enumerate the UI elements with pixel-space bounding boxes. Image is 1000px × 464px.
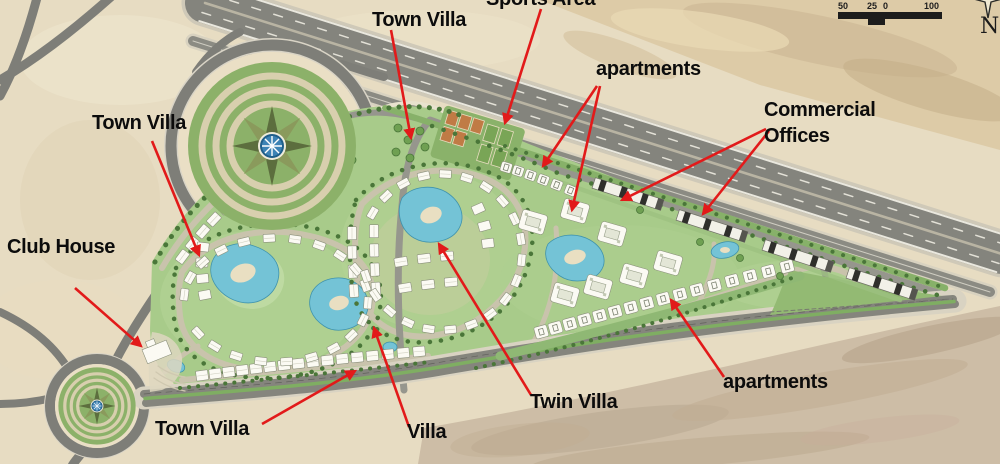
villa-building xyxy=(381,349,394,360)
label-commercial-offices: Commercial Offices xyxy=(764,97,876,149)
scale-tick-0: 0 xyxy=(883,1,888,11)
villa-building xyxy=(440,251,454,261)
label-twin-villa: Twin Villa xyxy=(530,389,617,415)
villa-building xyxy=(198,289,211,300)
villa-building xyxy=(516,232,526,245)
label-town-villa-top: Town Villa xyxy=(372,7,466,33)
scale-bar: 50250100 xyxy=(836,1,952,31)
north-label: N xyxy=(980,14,999,39)
villa-building xyxy=(288,235,301,245)
villa-building xyxy=(517,254,526,267)
villa-building xyxy=(351,352,364,363)
villa-building xyxy=(439,170,451,178)
label-town-villa-left: Town Villa xyxy=(92,110,186,136)
villa-building xyxy=(413,346,426,357)
villa-building xyxy=(349,284,359,298)
villa-building xyxy=(444,325,457,334)
villa-building xyxy=(196,242,209,252)
scale-tick-50: 50 xyxy=(838,1,848,11)
label-sports-area: Sports Area xyxy=(486,0,595,12)
villa-building xyxy=(195,370,208,382)
villa-building xyxy=(254,356,267,365)
label-villa: Villa xyxy=(407,419,446,445)
villa-building xyxy=(444,277,458,287)
villa-building xyxy=(336,353,349,364)
villa-building xyxy=(347,227,356,240)
star-roundabout xyxy=(58,367,135,444)
villa-building xyxy=(321,355,334,366)
villa-building xyxy=(366,350,379,361)
master-plan-screenshot: Sports AreaTown VillaapartmentsCommercia… xyxy=(0,0,1000,464)
villa-building xyxy=(348,246,357,259)
villa-building xyxy=(363,297,372,310)
scale-tick-100: 100 xyxy=(924,1,939,11)
label-apartments-top: apartments xyxy=(596,56,701,82)
label-town-villa-bottom: Town Villa xyxy=(155,416,249,442)
villa-building xyxy=(394,256,408,267)
villa-building xyxy=(369,225,378,238)
villa-building xyxy=(292,358,305,369)
villa-building xyxy=(481,238,494,248)
villa-building xyxy=(417,253,431,264)
villa-building xyxy=(397,347,410,358)
villa-building xyxy=(421,279,435,290)
villa-building xyxy=(280,357,293,366)
villa-building xyxy=(370,244,379,257)
star-roundabout xyxy=(188,62,356,230)
villa-building xyxy=(422,324,435,334)
villa-building xyxy=(398,282,412,293)
villa-building xyxy=(209,368,222,379)
villa-building xyxy=(263,234,275,243)
villa-building xyxy=(196,274,209,284)
villa-building xyxy=(236,364,249,375)
scale-bar-notch xyxy=(868,19,885,25)
label-club-house: Club House xyxy=(7,234,115,260)
site-plan-map xyxy=(0,0,1000,464)
villa-building xyxy=(222,366,235,377)
villa-building xyxy=(370,263,380,276)
villa-building xyxy=(180,288,189,301)
north-compass: N xyxy=(972,0,1000,44)
label-apartments-bottom: apartments xyxy=(723,369,828,395)
scale-bar-rule xyxy=(838,12,942,19)
scale-tick-25: 25 xyxy=(867,1,877,11)
